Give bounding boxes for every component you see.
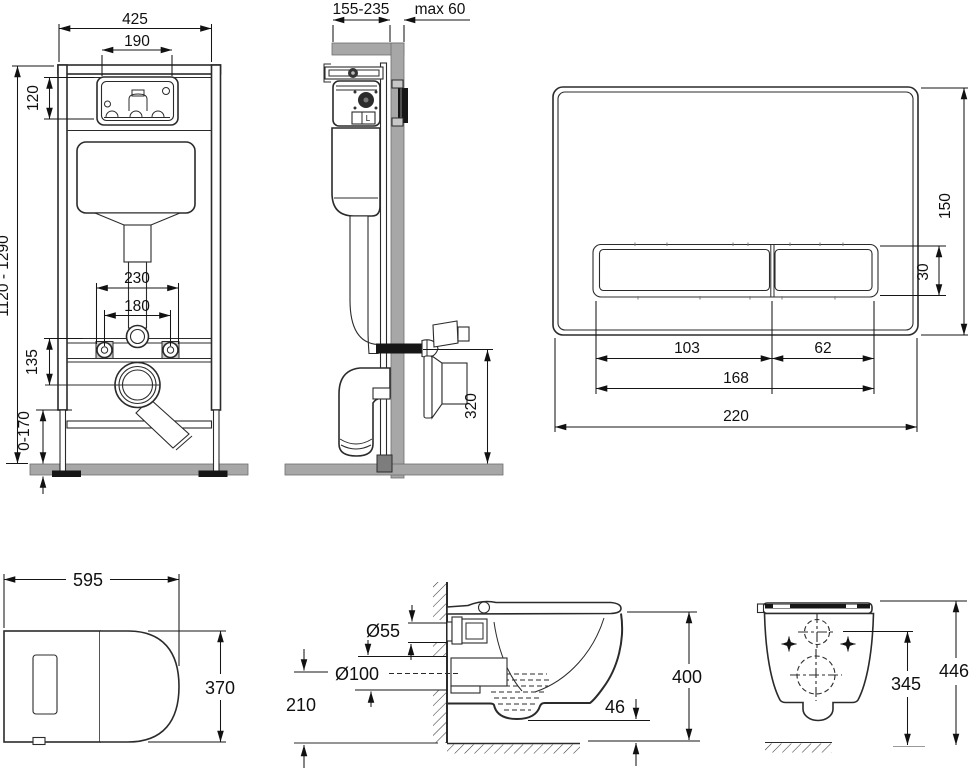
bowl-back-outline bbox=[758, 603, 874, 721]
floor-slab-side bbox=[285, 464, 503, 475]
flush-pipe-side bbox=[350, 216, 378, 354]
dim-label-155-235: 155-235 bbox=[333, 1, 390, 18]
large-flush-button bbox=[600, 250, 770, 291]
dim-label-120: 120 bbox=[25, 85, 42, 111]
dim-label-400: 400 bbox=[672, 667, 702, 687]
bowl-top-outline bbox=[4, 631, 179, 745]
dim-label-d100: Ø100 bbox=[335, 664, 379, 684]
toilet-top-view: 595 370 bbox=[4, 570, 235, 745]
wall-hatching bbox=[433, 582, 447, 743]
inlet-connection bbox=[447, 617, 487, 644]
outlet-duct bbox=[451, 658, 507, 693]
toilet-back-view: 345 446 bbox=[758, 601, 970, 762]
top-wall-bracket bbox=[324, 64, 383, 82]
dim-plate-height: 150 bbox=[921, 88, 968, 335]
dim-bowl-height: 400 bbox=[588, 612, 702, 741]
technical-drawing-page: 425 190 120 1120 - 1290 230 bbox=[0, 0, 970, 770]
dim-label-135: 135 bbox=[24, 349, 41, 375]
dim-label-230: 230 bbox=[124, 270, 150, 287]
right-foot-plate bbox=[199, 471, 228, 478]
dim-label-220: 220 bbox=[723, 408, 749, 425]
dim-label-595: 595 bbox=[73, 570, 103, 590]
small-flush-button bbox=[775, 250, 872, 291]
dim-label-62: 62 bbox=[814, 340, 831, 357]
inlet-sleeve bbox=[433, 321, 469, 347]
cistern-side: L bbox=[332, 81, 380, 354]
dim-install-depth: 155-235 bbox=[333, 1, 390, 42]
flush-plate-front-view: 150 30 103 62 168 220 bbox=[553, 87, 968, 432]
dim-frame-height: 1120 - 1290 bbox=[0, 66, 54, 464]
dim-label-0-170: 0-170 bbox=[16, 411, 33, 451]
installation-frame-front-view: 425 190 120 1120 - 1290 230 bbox=[0, 11, 248, 494]
floor-hatching bbox=[294, 743, 580, 754]
dim-outlet-axis-height: 210 bbox=[286, 649, 328, 768]
dim-label-max-60: max 60 bbox=[415, 1, 466, 18]
flush-buttons bbox=[593, 243, 878, 300]
dim-label-d55: Ø55 bbox=[366, 621, 400, 641]
dim-label-210: 210 bbox=[286, 695, 316, 715]
installation-drawing: 425 190 120 1120 - 1290 230 bbox=[0, 0, 970, 770]
dim-label-46: 46 bbox=[605, 697, 625, 717]
toilet-side-view: Ø55 Ø100 210 400 46 bbox=[286, 582, 702, 768]
dim-label-345: 345 bbox=[891, 674, 921, 694]
dim-label-425: 425 bbox=[122, 11, 148, 28]
dim-wall-thickness: max 60 bbox=[404, 1, 470, 42]
ground-hatching-back bbox=[765, 743, 832, 753]
outlet-sleeve bbox=[424, 356, 467, 418]
dim-label-168: 168 bbox=[723, 370, 749, 387]
flush-plate-cutout bbox=[97, 77, 178, 125]
dim-label-103: 103 bbox=[674, 340, 700, 357]
dim-label-180: 180 bbox=[124, 298, 150, 315]
dim-label-446: 446 bbox=[939, 661, 969, 681]
dim-overall-height: 446 bbox=[880, 601, 969, 745]
dim-buttons-width: 168 bbox=[596, 370, 874, 389]
dim-label-190: 190 bbox=[124, 33, 150, 50]
installation-frame-side-view: L 155-235 bbox=[285, 1, 503, 478]
frame-rail-side bbox=[377, 63, 392, 472]
dim-label-30: 30 bbox=[915, 263, 932, 281]
left-foot-plate bbox=[52, 471, 81, 478]
bowl-side-outline bbox=[447, 602, 622, 720]
dim-label-370: 370 bbox=[205, 678, 235, 698]
valve-label: L bbox=[366, 114, 371, 123]
dim-label-1120-1290: 1120 - 1290 bbox=[0, 235, 12, 317]
dim-trap-offset: 46 bbox=[528, 697, 650, 766]
dim-label-320: 320 bbox=[463, 393, 480, 419]
seat-lid bbox=[447, 602, 621, 615]
watermark-smudge bbox=[866, 734, 970, 762]
dim-label-150: 150 bbox=[937, 193, 954, 219]
seat-hinge bbox=[479, 602, 490, 613]
